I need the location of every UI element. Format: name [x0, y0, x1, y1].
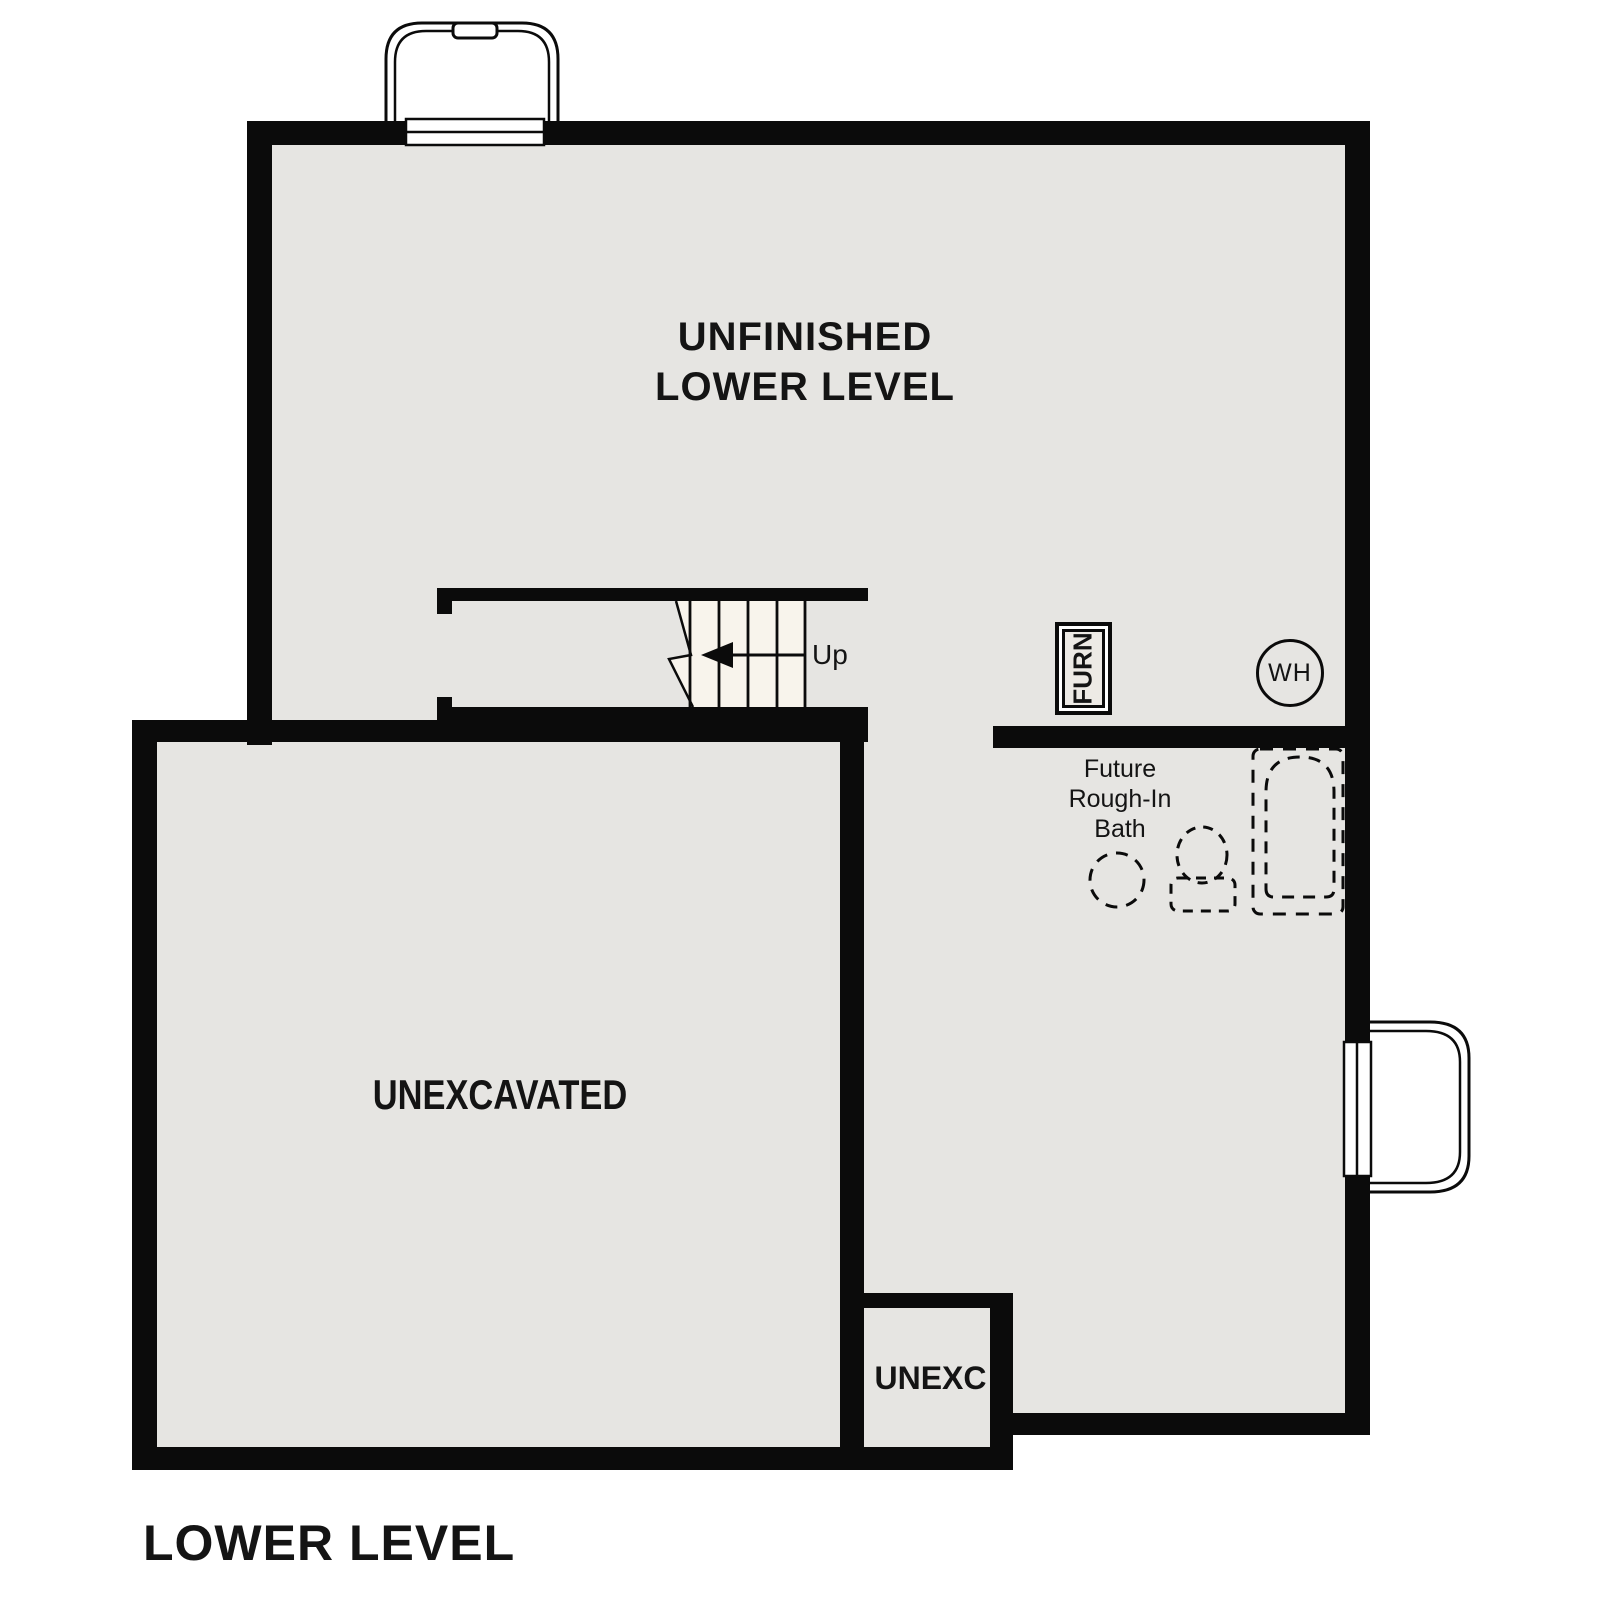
future-shower-drain-icon [1090, 853, 1144, 907]
furnace-label: FURN [1068, 632, 1099, 704]
stairs-up-label: Up [812, 639, 848, 671]
future-tub-basin-icon [1266, 757, 1334, 897]
water-heater-symbol: WH [1256, 639, 1324, 707]
future-rough-in-bath-label: Future Rough-In Bath [1020, 754, 1220, 844]
unfinished-label-line2: LOWER LEVEL [505, 362, 1105, 412]
unfinished-lower-level-label: UNFINISHED LOWER LEVEL [505, 312, 1105, 412]
top-window-well-inner [395, 31, 549, 121]
plan-title: LOWER LEVEL [143, 1514, 515, 1572]
unfinished-label-line1: UNFINISHED [505, 312, 1105, 362]
water-heater-label: WH [1268, 659, 1312, 688]
future-bath-line1: Future [1020, 754, 1220, 784]
future-bath-line2: Rough-In [1020, 784, 1220, 814]
right-window-well-inner [1368, 1031, 1460, 1183]
floor-plan: FURN WH UNFINISHED LOWER LEVEL Up Future… [0, 0, 1600, 1600]
furnace-symbol-inner: FURN [1062, 629, 1105, 708]
right-window-well-outer [1368, 1022, 1469, 1192]
plan-details [0, 0, 1600, 1600]
furnace-symbol: FURN [1055, 622, 1112, 715]
future-bath-line3: Bath [1020, 814, 1220, 844]
unexcavated-label: UNEXCAVATED [295, 1071, 705, 1119]
unexc-small-label: UNEXC [848, 1360, 1013, 1397]
top-well-step-icon [453, 23, 497, 38]
